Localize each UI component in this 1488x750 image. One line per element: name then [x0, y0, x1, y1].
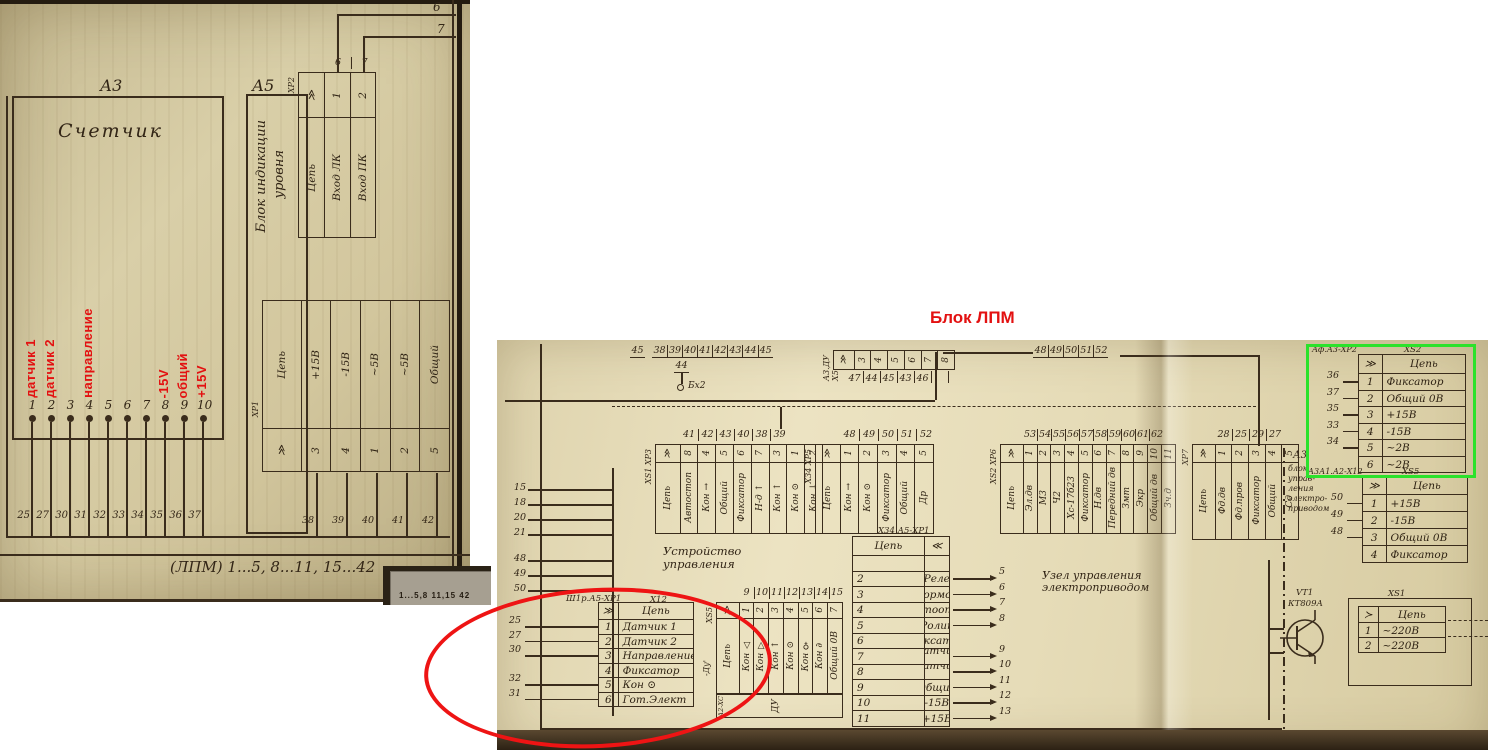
table-col: 4: [870, 351, 887, 369]
table-col: 7Н-д ↑: [751, 445, 769, 533]
wire-number: 50: [878, 429, 897, 441]
pin-cell: 8: [1121, 445, 1134, 463]
green-highlight-rectangle: [1306, 344, 1476, 478]
circuit-cell: Фиксатор: [878, 463, 896, 533]
table-row: [853, 555, 949, 571]
uzel-caption: Узел управленияэлектроприводом: [1042, 570, 1149, 594]
wire-numbers-row: 9101112131415: [739, 587, 844, 599]
cell-text: 3: [882, 450, 892, 456]
wire-number: 45: [758, 345, 773, 357]
cell-text: 5: [1081, 450, 1091, 456]
arrowhead-icon: [990, 575, 997, 581]
table-col: 2Фд.пров: [1231, 445, 1248, 539]
table-col: 1Кон ⊙: [786, 445, 804, 533]
wire-numbers-row: 414243403839: [680, 429, 788, 441]
table-col: 8Автостоп: [680, 445, 698, 533]
table-row: 2~220В: [1359, 637, 1445, 652]
wire-number: 15: [829, 587, 844, 599]
arrowhead-icon: [990, 715, 997, 721]
circuit-cell: Хс-17б23: [1065, 463, 1078, 533]
pin-cell: 4: [1363, 546, 1387, 563]
cell-text: 3: [773, 450, 783, 456]
circuit-cell: 3: [853, 587, 924, 603]
circuit-header: Цепь: [1193, 463, 1215, 539]
pin-cell: 5: [799, 603, 813, 619]
circuit-cell: Эл.дв: [1024, 463, 1037, 533]
wire-number: 39: [770, 429, 788, 441]
wire-number: 48: [1321, 526, 1343, 537]
caption-line: электроприводом: [1042, 582, 1149, 594]
cell-text: 7: [830, 607, 840, 613]
table-row: 5Ролик: [853, 617, 949, 633]
table-col: 6: [904, 351, 921, 369]
wire-number: 49: [508, 568, 526, 579]
cell-text: 5: [720, 450, 730, 456]
wire-number: 55: [1051, 429, 1065, 441]
circuit-cell: Кон ↑: [770, 463, 787, 533]
cell-text: 6: [815, 607, 825, 613]
table-row: 3Общий 0В: [1363, 528, 1467, 545]
wire-number: 43: [716, 429, 734, 441]
wire-line: [953, 656, 993, 658]
cell-text: Кон ↑: [771, 641, 781, 670]
pin-cell: 2: [1038, 445, 1051, 463]
wire-line: [953, 625, 993, 627]
pin-cell: 5: [716, 445, 733, 463]
cell-text: 4: [702, 450, 712, 456]
table-row: 4Лентоотвод: [853, 602, 949, 618]
wire-number: 29: [1249, 429, 1266, 441]
cell-text: 8: [1122, 450, 1132, 456]
table-row: 2Реле: [853, 571, 949, 587]
cell-text: Кон →: [702, 483, 712, 512]
wire-number: 12: [784, 587, 799, 599]
table-row: 9Общий: [853, 679, 949, 695]
cell-text: 4: [1268, 450, 1278, 456]
circuit-cell: Кон ⊙: [784, 619, 798, 693]
wire-number: 11: [769, 587, 784, 599]
circuit-header: Цепь: [1379, 607, 1445, 622]
cell-text: Цепь: [823, 486, 833, 510]
table-col: 4Общий: [1265, 445, 1282, 539]
pin-cell: 3: [855, 351, 871, 369]
pin-cell: Фиксатор: [924, 634, 949, 650]
circuit-cell: -15В: [1387, 512, 1467, 529]
wire-number: 11: [999, 675, 1013, 686]
pin-cell: 1: [1363, 495, 1387, 512]
pin-cell: 2: [1363, 512, 1387, 529]
wire-number: 42: [698, 429, 716, 441]
circuit-cell: Общий: [716, 463, 733, 533]
wire-number: 9: [999, 644, 1013, 655]
wire-line: [953, 687, 993, 689]
table-row: 2-15В: [1363, 511, 1467, 528]
wire-line: [528, 534, 612, 536]
table-col: 3Фиксатор: [1248, 445, 1265, 539]
cell-text: Кон ⊙: [791, 483, 801, 512]
overlap-strip-text: 1...5,8 11,15 42: [399, 591, 470, 600]
wire-number: 42: [712, 345, 727, 357]
table-col: 6Н.дв: [1092, 445, 1106, 533]
arrowhead-icon: [990, 622, 997, 628]
cell-text: ≫: [823, 449, 833, 458]
caption-line: управления: [663, 558, 741, 571]
table-row: 1+15В: [1363, 494, 1467, 511]
cell-text: 7: [755, 450, 765, 456]
pin-cell: 4: [897, 445, 915, 463]
routing-line: [505, 400, 935, 402]
cell-text: Н.дв: [1094, 487, 1104, 509]
cell-text: Передний дв: [1108, 467, 1118, 528]
cell-text: 6: [737, 450, 747, 456]
circuit-cell: Фиксатор: [734, 463, 751, 533]
wire-line: [528, 519, 612, 521]
pin-cell: 7: [752, 445, 769, 463]
wire-numbers-row: 4849505152: [840, 429, 935, 441]
wire-number: 51: [897, 429, 916, 441]
pin-cell: 7: [1107, 445, 1120, 463]
cell-text: Кон ♀: [801, 640, 811, 671]
pin-cell: 4: [784, 603, 798, 619]
cell-text: Змт: [1122, 487, 1132, 509]
cell-text: Кон ∂: [815, 643, 825, 669]
circuit-cell: 10: [853, 696, 924, 712]
vt1-part-number: КТ809А: [1288, 599, 1323, 609]
connector-ref-label: ХS2 ХР6: [989, 449, 998, 484]
table-row: 11+15В: [853, 710, 949, 726]
wire-numbers-row: 3839404142434445: [652, 345, 773, 358]
circuit-header: Цепь: [656, 463, 680, 533]
arrowhead-icon: [990, 591, 997, 597]
table-col: 1Кон →: [840, 445, 859, 533]
circuit-cell: 6: [853, 634, 924, 650]
cell-text: Кон ⊙: [863, 483, 873, 512]
circuit-cell: Ч2: [1051, 463, 1064, 533]
connector-table-x34-xp5: ≫Цепь1Кон →2Кон ⊙3Фиксатор4Общий5ДрХ34 Х…: [815, 444, 934, 534]
cell-text: ≫: [1007, 449, 1017, 458]
wire-number: 12: [999, 690, 1013, 701]
wire-line: [528, 489, 612, 491]
table-col: 5Общий: [715, 445, 733, 533]
arrowhead-icon: [990, 606, 997, 612]
circuit-cell: Фиксатор: [1387, 546, 1467, 563]
table-col: 5Фиксатор: [1078, 445, 1092, 533]
a3-block-ref: А3: [1293, 450, 1307, 461]
wire-number: 13: [799, 587, 814, 599]
wire-number: 5: [999, 566, 1013, 577]
circuit-cell: +15В: [1387, 495, 1467, 512]
connector-table-xs1-xp3: ≫Цепь8Автостоп4Кон →5Общий6Фиксатор7Н-д …: [655, 444, 823, 534]
cell-text: Цепь: [1007, 486, 1017, 510]
cell-text: 3: [771, 607, 781, 613]
wire-number: 8: [999, 613, 1013, 624]
wire-number: 49: [1321, 509, 1343, 520]
ustroystvo-caption: Устройствоуправления: [663, 545, 741, 571]
circuit-cell: Кон ∂: [813, 619, 827, 693]
table-col: 5: [887, 351, 904, 369]
connector-table-xs1-mains: ≻Цепь1~220В2~220В: [1358, 606, 1446, 653]
pin-cell: 1: [1359, 623, 1379, 638]
pin-cell: 4: [1266, 445, 1282, 463]
pin-cell: 3: [770, 445, 787, 463]
circuit-cell: Кон →: [841, 463, 859, 533]
pin-cell: 1: [1024, 445, 1037, 463]
pin-cell: 8: [938, 351, 954, 369]
table-col: ≫Цепь: [1193, 445, 1215, 539]
wire-line: [1347, 520, 1363, 522]
circuit-header: Цепь: [1387, 477, 1467, 494]
pin-cell: 3: [769, 603, 783, 619]
wire-number: 51: [1078, 345, 1093, 357]
table-col: 5Кон ♀: [798, 603, 813, 693]
transistor-symbol-icon: [1280, 610, 1328, 668]
routing-line: [943, 352, 1033, 354]
circuit-cell: Фд.пров: [1232, 463, 1248, 539]
circuit-cell: [853, 556, 924, 572]
connector-arrow-icon: ≪: [924, 537, 949, 555]
pin-cell: 4: [871, 351, 887, 369]
wire-number: 40: [682, 345, 697, 357]
red-title-annotation: Блок ЛПМ: [930, 308, 1015, 328]
wire-number: 44: [742, 345, 757, 357]
cell-text: Фиксатор: [1252, 476, 1262, 525]
cell-text: Общий: [900, 481, 910, 514]
circuit-cell: Общий: [1266, 463, 1282, 539]
cell-text: ≫: [663, 449, 673, 458]
cell-text: Кон ⊙: [786, 641, 796, 670]
wire-number: 48: [508, 553, 526, 564]
cell-text: Фиксатор: [737, 473, 747, 522]
connector-table-xs5-right: ≫Цепь1+15В2-15В3Общий 0В4Фиксатор504948: [1362, 476, 1468, 563]
connector-arrow-icon: ≫: [656, 445, 680, 463]
table-row: 4Фиксатор: [1363, 545, 1467, 562]
pin-cell: 6: [905, 351, 921, 369]
circuit-cell: 9: [853, 680, 924, 696]
wire-number: 60: [1121, 429, 1135, 441]
circuit-cell: Н-д ↑: [752, 463, 769, 533]
pin-cell: Общий: [924, 680, 949, 696]
wire-number: 6: [999, 582, 1013, 593]
wire-number: 28: [1215, 429, 1232, 441]
connector-ref-label: А3.ДУ Х5: [822, 355, 840, 381]
cell-text: 3: [1053, 450, 1063, 456]
pin-cell: Датчик 2: [924, 665, 949, 681]
mains-wire: [1448, 636, 1488, 637]
cell-text: М3: [1039, 490, 1049, 505]
connector-ref-label: Х34 ХР5: [804, 449, 813, 484]
pin-cell: 2: [754, 603, 768, 619]
wire-number: 52: [916, 429, 935, 441]
circuit-cell: 5: [853, 618, 924, 634]
circuit-cell: Общий 0В: [1387, 529, 1467, 546]
wire-number: 38: [752, 429, 770, 441]
pin-cell: 4: [698, 445, 715, 463]
wire-number: 57: [1079, 429, 1093, 441]
wire-number: 27: [1266, 429, 1283, 441]
circuit-cell: Общий: [897, 463, 915, 533]
table-col: 6Фиксатор: [733, 445, 751, 533]
wire-number: 53: [1023, 429, 1037, 441]
routing-line: [780, 407, 782, 429]
wire-number: 39: [667, 345, 682, 357]
wire-number: 50: [508, 583, 526, 594]
table-col: ≫Цепь: [656, 445, 680, 533]
pin-cell: [924, 556, 949, 572]
cell-text: Фиксатор: [1081, 473, 1091, 522]
circuit-cell: Кон ⊙: [787, 463, 804, 533]
wire-number: 15: [508, 482, 526, 493]
vt1-wire: [1268, 652, 1284, 654]
table-col: 6Кон ∂: [812, 603, 827, 693]
pin-cell: 5: [1079, 445, 1092, 463]
pin-cell: 2: [1359, 638, 1379, 653]
cell-text: Общий: [720, 481, 730, 514]
pin-cell: 7: [828, 603, 842, 619]
cell-text: 6: [908, 357, 918, 363]
wire-number: 50: [1321, 492, 1343, 503]
a3-boundary-dashdot: [1283, 448, 1285, 730]
cell-text: 4: [900, 450, 910, 456]
circuit-header: Цепь: [853, 537, 924, 555]
wire-number: 50: [1063, 345, 1078, 357]
table-header-row: ≻Цепь: [1359, 607, 1445, 622]
pin-cell: Датчик 1: [924, 649, 949, 665]
circuit-cell: Др: [915, 463, 933, 533]
circuit-cell: Змт: [1121, 463, 1134, 533]
cell-text: Кон →: [844, 483, 854, 512]
table-col: 4Хс-17б23: [1064, 445, 1078, 533]
node-label: Бх2: [688, 381, 705, 391]
cell-text: Фиксатор: [882, 473, 892, 522]
wire-number: 10: [999, 659, 1013, 670]
circuit-cell: ~220В: [1379, 638, 1445, 653]
table-header-row: ≫Цепь: [1363, 477, 1467, 494]
circuit-cell: ~220В: [1379, 623, 1445, 638]
pin-cell: 2: [859, 445, 877, 463]
scanned-schematic-page: { "annotations": { "title_red": "Блок ЛП…: [0, 0, 1488, 750]
table-col: 4Общий: [896, 445, 915, 533]
cell-text: 6: [1094, 450, 1104, 456]
table-col: 5Др: [914, 445, 933, 533]
table-row: 7Датчик 1: [853, 648, 949, 664]
wire-number: 49: [859, 429, 878, 441]
pin-cell: 1: [1216, 445, 1232, 463]
pin-cell: 8: [681, 445, 698, 463]
circuit-cell: 2: [853, 572, 924, 588]
pin-cell: Тормоз: [924, 587, 949, 603]
cell-text: 7: [1108, 450, 1118, 456]
wire-number: 54: [1037, 429, 1051, 441]
circuit-cell: Фд.дв: [1216, 463, 1232, 539]
cell-text: 3: [858, 357, 868, 363]
wire-stub: [948, 371, 950, 383]
cell-text: 2: [1235, 450, 1245, 456]
pin-cell: 6: [813, 603, 827, 619]
table-col: 3Кон ↑: [768, 603, 783, 693]
cell-text: Фд.дв: [1218, 487, 1228, 514]
wire-number: 40: [734, 429, 752, 441]
wire-number: 46: [911, 373, 935, 384]
wire-line: [953, 671, 993, 673]
cell-text: 8: [941, 357, 951, 363]
table-col: 8: [937, 351, 954, 369]
table-col: 2Кон ⊙: [858, 445, 877, 533]
wire-line: [528, 560, 612, 562]
table-col: 7Передний дв: [1106, 445, 1120, 533]
cell-text: ≫: [1199, 449, 1209, 458]
wire-numbers-row: 44: [674, 360, 689, 373]
wire-number: 56: [1065, 429, 1079, 441]
table-col: ≫Цепь: [1001, 445, 1023, 533]
table-header-row: Цепь≪: [853, 537, 949, 555]
pin-cell: Лентоотвод: [924, 603, 949, 619]
cell-text: Фд.пров: [1235, 482, 1245, 520]
wire-number: 21: [508, 527, 526, 538]
vt1-wire: [1268, 560, 1270, 720]
table-col: 4Кон →: [697, 445, 715, 533]
circuit-cell: Кон ⊙: [859, 463, 877, 533]
wire-line: [528, 504, 612, 506]
table-col: ≫Цепь: [816, 445, 840, 533]
wire-line: [953, 594, 993, 596]
pin-cell: 6: [1093, 445, 1106, 463]
cell-text: ≫: [839, 355, 849, 364]
pin-cell: 3: [1051, 445, 1064, 463]
pin-cell: 3: [878, 445, 896, 463]
pin-cell: 5: [915, 445, 933, 463]
cell-text: 5: [801, 607, 811, 613]
wire-number: 48: [840, 429, 859, 441]
cell-text: Др: [919, 491, 929, 504]
cell-text: 2: [756, 607, 766, 613]
table-col: 3: [854, 351, 871, 369]
table-row: 6Фиксатор: [853, 633, 949, 649]
connector-arrow-icon: ≫: [1363, 477, 1387, 494]
cell-text: Хс-17б23: [1067, 476, 1077, 519]
wire-number: 14: [814, 587, 829, 599]
table-col: 3Кон ↑: [769, 445, 787, 533]
arrowhead-icon: [990, 684, 997, 690]
central-circuit-table: Цепь≪2Реле3Тормоз4Лентоотвод5Ролик6Фикса…: [852, 536, 950, 727]
cell-text: 2: [863, 450, 873, 456]
circuit-cell: 8: [853, 665, 924, 681]
pin-cell: 3: [1363, 529, 1387, 546]
circuit-cell: 7: [853, 649, 924, 665]
circuit-cell: Фиксатор: [1079, 463, 1092, 533]
arrowhead-icon: [990, 699, 997, 705]
wire-number: 43: [727, 345, 742, 357]
mains-wire: [1448, 620, 1488, 621]
wire-number: 49: [1048, 345, 1063, 357]
cell-text: Ч2: [1053, 491, 1063, 504]
cell-text: Кон ↑: [773, 483, 783, 512]
central-table-ref: Х34 А5-ХР1: [878, 526, 929, 536]
connector-arrow-icon: ≫: [816, 445, 840, 463]
wire-line: [953, 609, 993, 611]
circuit-cell: 4: [853, 603, 924, 619]
vt1-base-wire: [1268, 628, 1284, 630]
pin-cell: -15В: [924, 696, 949, 712]
pin-cell: +15В: [924, 711, 949, 727]
cell-text: 1: [844, 450, 854, 456]
wire-line: [953, 702, 993, 704]
circuit-header: Цепь: [816, 463, 840, 533]
cell-text: 1: [1025, 450, 1035, 456]
arrowhead-icon: [990, 653, 997, 659]
wire-number: 13: [999, 706, 1013, 717]
wire-line: [1347, 503, 1363, 505]
circuit-cell: Автостоп: [681, 463, 698, 533]
